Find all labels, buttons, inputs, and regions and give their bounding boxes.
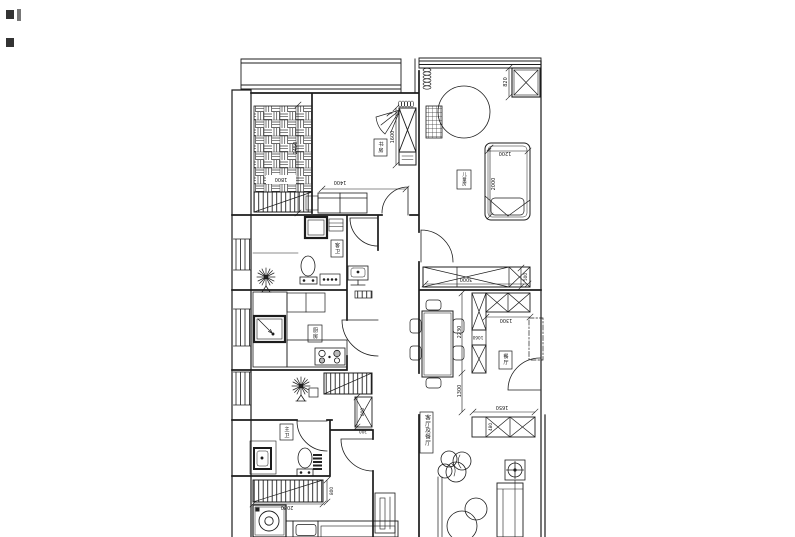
dim-tv-cabinet-d: 480 — [488, 423, 493, 431]
door-arc — [350, 218, 378, 246]
hallway: 800 300 — [292, 373, 372, 434]
door-arc — [297, 421, 327, 451]
kids-room: 820 1200 2000 3000 500 儿童房 — [421, 65, 540, 290]
dim-kids-wardrobe-depth: 500 — [523, 273, 528, 281]
coffee-table — [465, 498, 487, 520]
dining-area: 1060 1300 2230 1300 餐厅 — [410, 290, 543, 415]
dim-study-desk: 1400 — [334, 179, 347, 185]
dim-tv-cabinet-w: 1650 — [496, 404, 509, 410]
left-wall-windows — [234, 239, 252, 405]
tall-cabinet — [472, 293, 486, 373]
dim-hall-radiator-h: 800 — [360, 408, 365, 416]
shelf — [329, 219, 343, 231]
floor-plan-drawing: 1800 2450 1600 1400 — [0, 0, 795, 537]
kitchen-sink — [254, 316, 285, 342]
sofa — [497, 483, 523, 537]
tv-cabinet — [472, 417, 535, 437]
dim-bed-width: 1200 — [499, 150, 512, 156]
kitchen: 厨房 — [253, 253, 378, 367]
room-label-living: 客厅及餐厅 — [420, 412, 433, 453]
svg-text:客厅及餐厅: 客厅及餐厅 — [424, 414, 431, 446]
room-label-kitchen: 厨房 — [308, 325, 322, 342]
toilet-icon — [300, 256, 317, 284]
study-wardrobe — [399, 108, 416, 165]
room-label-study: 书房 — [374, 139, 387, 156]
coil-icon — [398, 101, 413, 107]
balcony: 1800 — [254, 106, 312, 212]
dim-passage: 1300 — [457, 385, 463, 398]
door-arc — [421, 230, 453, 262]
coffee-table — [447, 511, 477, 537]
door-arc — [341, 439, 373, 471]
shower-head-icon — [257, 268, 275, 292]
pass-through-comb — [355, 291, 372, 298]
dim-cabinet-mid: 1060 — [472, 335, 483, 340]
towel-radiator-icon — [313, 454, 322, 470]
upper-cabinets — [287, 293, 325, 312]
dim-bed-length: 2000 — [491, 178, 497, 191]
svg-text:主卫: 主卫 — [284, 425, 290, 438]
round-rug — [438, 86, 490, 138]
room-label-dining: 餐厅 — [499, 351, 512, 369]
dim-study-wardrobe: 1600 — [390, 131, 396, 144]
svg-text:儿童房: 儿童房 — [462, 171, 467, 188]
stove-icon — [315, 348, 345, 365]
coil-icon — [423, 68, 431, 89]
shower-head-icon — [292, 377, 310, 401]
svg-text:书房: 书房 — [378, 140, 384, 154]
dim-kids-wardrobe-width: 3000 — [460, 276, 473, 282]
floor-lamp-icon — [505, 460, 525, 537]
svg-text:餐厅: 餐厅 — [502, 352, 508, 365]
upper-cabinet — [486, 293, 530, 312]
door-arc — [508, 358, 540, 390]
floor-plan-page: 1800 2450 1600 1400 — [0, 0, 795, 537]
dim-study-depth: 2450 — [293, 142, 299, 155]
plant-icon — [438, 451, 471, 482]
desk — [306, 193, 367, 213]
dim-kids-cabinet: 820 — [503, 77, 509, 87]
vanity — [320, 274, 340, 285]
stand — [309, 388, 318, 397]
dim-hall-radiator-w: 300 — [359, 429, 367, 434]
hall-cabinet — [375, 493, 395, 533]
master-bedroom: 2080 800 — [250, 477, 398, 537]
room-label-guest-bath: 客卫 — [331, 240, 343, 257]
room-label-kids: 儿童房 — [457, 170, 471, 189]
dim-cabinet-run: 2230 — [457, 326, 463, 339]
wash-basin — [250, 441, 276, 474]
edge-artifacts — [6, 9, 21, 47]
rug-edge — [438, 477, 442, 537]
kids-cabinet — [512, 68, 540, 97]
corridor-basin — [348, 266, 368, 285]
corner-fan-basin — [376, 110, 400, 134]
svg-text:厨房: 厨房 — [312, 327, 318, 340]
dining-table — [422, 311, 453, 377]
room-label-master-bath: 主卫 — [280, 424, 293, 440]
toilet-icon — [297, 448, 313, 476]
svg-text:客卫: 客卫 — [334, 241, 340, 254]
bay-window — [241, 59, 415, 93]
dim-bedroom-radiator-d: 800 — [329, 487, 334, 495]
dim-line — [319, 186, 409, 192]
kids-window — [419, 58, 541, 68]
dim-upper-cabinet: 1300 — [500, 317, 513, 323]
dim-balcony: 1800 — [275, 176, 288, 182]
guest-bathroom: 客卫 — [257, 217, 378, 292]
master-bathroom: 主卫 — [250, 421, 327, 476]
